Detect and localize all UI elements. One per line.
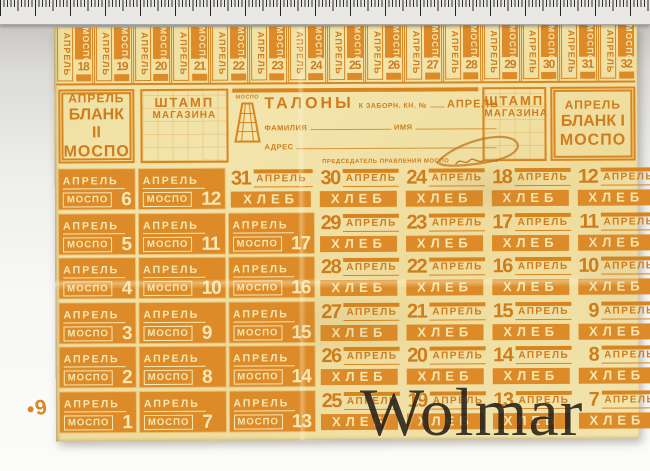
name-label: ИМЯ — [394, 123, 413, 132]
top-coupon: АПРЕЛЬ МОСПО 26 — [366, 26, 405, 82]
mospo-coupon: АПРЕЛЬ МОСПО 13 — [229, 391, 315, 431]
ration-book-label: К ЗАБОРН. КН. № — [359, 103, 427, 110]
bread-coupon-cell: 7 АПРЕЛЬ ХЛЕБ — [574, 387, 650, 432]
bread-product-label: ХЛЕБ — [406, 190, 483, 206]
bread-coupon-cell: 12 АПРЕЛЬ ХЛЕБ — [573, 164, 650, 209]
bread-product-label: ХЛЕБ — [321, 280, 398, 296]
bread-coupon-cell: 15 АПРЕЛЬ ХЛЕБ — [488, 299, 574, 344]
bread-product-label: ХЛЕБ — [492, 279, 569, 295]
month-label: АПРЕЛЬ — [600, 25, 616, 79]
address-label: АДРЕС — [265, 142, 294, 151]
bread-coupon: 22 АПРЕЛЬ ХЛЕБ — [404, 255, 486, 297]
org-label: МОСПО — [233, 236, 282, 251]
top-coupon: АПРЕЛЬ МОСПО 22 — [211, 27, 250, 83]
month-label: АПРЕЛЬ — [515, 257, 571, 275]
coupon-end-block — [425, 73, 440, 80]
org-strip: МОСПО 18 — [75, 27, 91, 85]
mospo-coupon: АПРЕЛЬ МОСПО 3 — [59, 303, 135, 343]
month-label: АПРЕЛЬ — [429, 302, 485, 320]
month-label: АПРЕЛЬ — [515, 212, 571, 230]
month-label: АПРЕЛЬ — [328, 26, 344, 80]
coupon-end-block — [386, 73, 401, 80]
bread-product-label: ХЛЕБ — [321, 325, 398, 341]
day-number: 22 — [404, 257, 426, 277]
org-label: МОСПО — [308, 26, 324, 58]
org-label: МОСПО — [153, 27, 169, 59]
org-label: МОСПО — [143, 236, 192, 251]
coupon-end-block — [502, 72, 517, 79]
month-label: АПРЕЛЬ — [143, 175, 205, 189]
mospo-coupon: АПРЕЛЬ МОСПО 5 — [59, 214, 135, 254]
org-label: МОСПО — [63, 281, 112, 296]
org-label: МОСПО — [75, 27, 91, 59]
top-coupon: АПРЕЛЬ МОСПО 21 — [172, 27, 211, 83]
month-label: АПРЕЛЬ — [429, 347, 485, 365]
month-label: АПРЕЛЬ — [173, 27, 189, 81]
month-label: АПРЕЛЬ — [601, 257, 650, 275]
mospo-coupon-cell: АПРЕЛЬ МОСПО 4 — [57, 256, 137, 301]
coupon-number: 23 — [269, 58, 285, 72]
org-strip: МОСПО 30 — [540, 25, 556, 83]
month-label: АПРЕЛЬ — [64, 354, 126, 368]
bread-coupon: 27 АПРЕЛЬ ХЛЕБ — [318, 301, 400, 343]
measurement-ruler — [0, 0, 650, 25]
stamp-label: ШТАМП — [142, 95, 226, 110]
day-number: 15 — [490, 301, 512, 321]
mospo-coupon: АПРЕЛЬ МОСПО 8 — [140, 347, 226, 387]
day-number: 29 — [318, 213, 340, 233]
org-strip: МОСПО 27 — [424, 26, 440, 84]
top-coupon: АПРЕЛЬ МОСПО 32 — [599, 24, 635, 80]
top-coupon: АПРЕЛЬ МОСПО 28 — [444, 25, 483, 81]
bread-product-label: ХЛЕБ — [407, 279, 484, 295]
coupon-end-block — [231, 74, 246, 81]
coupon-end-block — [541, 72, 556, 79]
mospo-coupon: АПРЕЛЬ МОСПО 17 — [228, 213, 314, 253]
mospo-coupon: АПРЕЛЬ МОСПО 14 — [229, 347, 315, 387]
month-label: АПРЕЛЬ — [251, 26, 267, 80]
org-strip: МОСПО 23 — [269, 26, 285, 84]
month-label: АПРЕЛЬ — [212, 27, 228, 81]
org-label: МОСПО — [269, 26, 285, 58]
bread-product-label: ХЛЕБ — [320, 235, 397, 251]
coupon-end-block — [114, 74, 129, 81]
mospo-coupon-cell: АПРЕЛЬ МОСПО 2 — [58, 345, 138, 390]
coupon-end-block — [580, 72, 595, 79]
bread-product-label: ХЛЕБ — [406, 235, 483, 251]
bread-product-label: ХЛЕБ — [492, 190, 569, 206]
top-coupon: АПРЕЛЬ МОСПО 30 — [521, 25, 560, 81]
org-label: МОСПО — [540, 25, 556, 57]
month-label: АПРЕЛЬ — [233, 308, 295, 322]
org-strip: МОСПО 29 — [502, 25, 518, 83]
day-number: 25 — [319, 391, 341, 411]
month-label: АПРЕЛЬ — [429, 257, 485, 275]
month-label: АПРЕЛЬ — [600, 167, 650, 185]
month-label: АПРЕЛЬ — [600, 212, 650, 230]
top-coupon: АПРЕЛЬ МОСПО 20 — [134, 27, 173, 83]
mospo-coupon: АПРЕЛЬ МОСПО 2 — [60, 347, 136, 387]
month-label: АПРЕЛЬ — [429, 213, 485, 231]
mospo-coupon: АПРЕЛЬ МОСПО 4 — [59, 258, 135, 298]
coupon-number: 20 — [153, 59, 169, 73]
coupon-number: 2 — [122, 370, 132, 387]
coupon-end-block — [619, 71, 634, 78]
org-label: МОСПО — [233, 325, 282, 340]
coupon-end-block — [153, 74, 168, 81]
mospo-coupon-cell: АПРЕЛЬ МОСПО 13 — [227, 389, 317, 434]
mospo-coupon: АПРЕЛЬ МОСПО 9 — [139, 302, 225, 342]
coupon-number: 22 — [230, 59, 246, 73]
month-label: АПРЕЛЬ — [343, 303, 399, 321]
sheet-header: АПРЕЛЬ БЛАНК II МОСПО ШТАМП МАГАЗИНА МОС… — [56, 84, 635, 165]
mospo-coupon: АПРЕЛЬ МОСПО 6 — [59, 169, 135, 209]
coupon-number: 29 — [502, 57, 518, 71]
org-strip: МОСПО 19 — [114, 27, 130, 85]
watermark-text: Wolmar — [360, 378, 583, 446]
bread-coupon-cell: 18 АПРЕЛЬ ХЛЕБ — [487, 165, 573, 210]
coupon-number: 21 — [191, 59, 207, 73]
coupon-number: 13 — [292, 413, 311, 430]
org-strip: МОСПО 24 — [308, 26, 324, 84]
coupon-number: 31 — [579, 57, 595, 71]
coupon-number: 4 — [122, 280, 132, 297]
top-coupon: АПРЕЛЬ МОСПО 23 — [250, 26, 289, 82]
bread-product-label: ХЛЕБ — [579, 368, 650, 384]
bread-coupon-cell: 21 АПРЕЛЬ ХЛЕБ — [402, 299, 488, 344]
day-number: 11 — [575, 211, 597, 231]
coupon-number: 30 — [541, 57, 557, 71]
month-label: АПРЕЛЬ — [63, 309, 125, 323]
month-label: АПРЕЛЬ — [561, 25, 577, 79]
bread-product-label: ХЛЕБ — [231, 191, 311, 207]
org-label: МОСПО — [385, 26, 401, 58]
org-label: МОСПО — [63, 237, 112, 252]
bread-coupon: 28 АПРЕЛЬ ХЛЕБ — [318, 256, 400, 298]
org-label: МОСПО — [114, 27, 130, 59]
bread-coupon: 8 АПРЕЛЬ ХЛЕБ — [576, 344, 650, 386]
org-label: МОСПО — [618, 24, 634, 56]
coupon-number: 24 — [308, 58, 324, 72]
coupon-end-block — [270, 73, 285, 80]
bread-product-label: ХЛЕБ — [578, 234, 650, 250]
top-coupon: АПРЕЛЬ МОСПО 24 — [289, 26, 328, 82]
bread-product-label: ХЛЕБ — [578, 323, 650, 339]
top-coupon: АПРЕЛЬ МОСПО 19 — [95, 27, 134, 83]
org-strip: МОСПО 20 — [153, 27, 169, 85]
coupon-number: 32 — [618, 56, 634, 70]
bread-coupon-cell: 31 АПРЕЛЬ ХЛЕБ — [226, 166, 316, 211]
chairman-label: ПРЕДСЕДАТЕЛЬ ПРАВЛЕНИЯ МОСПО — [322, 158, 449, 165]
org-strip: МОСПО 26 — [385, 26, 401, 84]
bread-coupon: 16 АПРЕЛЬ ХЛЕБ — [490, 255, 572, 297]
store-label: МАГАЗИНА — [142, 110, 226, 121]
coupon-number: 6 — [121, 191, 131, 208]
month-label: АПРЕЛЬ — [57, 27, 73, 81]
margin-note: •9 — [25, 395, 50, 422]
bread-product-label: ХЛЕБ — [579, 412, 650, 428]
month-label: АПРЕЛЬ — [601, 301, 650, 319]
month-label: АПРЕЛЬ — [63, 264, 125, 278]
day-number: 20 — [404, 346, 426, 366]
bread-coupon: 10 АПРЕЛЬ ХЛЕБ — [576, 255, 650, 297]
bread-coupon: 31 АПРЕЛЬ ХЛЕБ — [228, 167, 314, 209]
month-label: АПРЕЛЬ — [555, 98, 630, 112]
day-number: 16 — [490, 256, 512, 276]
coupon-number: 15 — [291, 324, 310, 341]
blank-ii-box: АПРЕЛЬ БЛАНК II МОСПО — [58, 89, 134, 163]
bread-coupon-cell: 28 АПРЕЛЬ ХЛЕБ — [316, 255, 402, 300]
day-number: 31 — [228, 169, 250, 189]
bread-product-label: ХЛЕБ — [407, 324, 484, 340]
day-number: 8 — [576, 345, 598, 365]
day-number: 9 — [576, 300, 598, 320]
mospo-coupon-cell: АПРЕЛЬ МОСПО 6 — [57, 167, 137, 212]
day-number: 30 — [318, 168, 340, 188]
mospo-coupon-cell: АПРЕЛЬ МОСПО 9 — [137, 300, 227, 345]
mospo-coupon: АПРЕЛЬ МОСПО 7 — [140, 392, 226, 432]
day-number: 28 — [318, 257, 340, 277]
org-label: МОСПО — [230, 27, 246, 59]
store-stamp-box-left: ШТАМП МАГАЗИНА — [140, 89, 228, 163]
day-number: 12 — [575, 167, 597, 187]
bread-coupon: 17 АПРЕЛЬ ХЛЕБ — [490, 210, 572, 252]
org-label: МОСПО — [144, 415, 193, 430]
bread-coupon-cell: 16 АПРЕЛЬ ХЛЕБ — [488, 254, 574, 299]
coupon-end-block — [192, 74, 207, 81]
bread-coupon-cell: 24 АПРЕЛЬ ХЛЕБ — [402, 165, 488, 210]
bread-coupon: 21 АПРЕЛЬ ХЛЕБ — [404, 300, 486, 342]
coupon-number: 28 — [463, 57, 479, 71]
mospo-logo: МОСПО — [232, 92, 262, 162]
org-label: МОСПО — [346, 26, 362, 58]
month-label: АПРЕЛЬ — [343, 169, 399, 187]
mospo-coupon-cell: АПРЕЛЬ МОСПО 3 — [57, 301, 137, 346]
scanned-ration-sheet: АПРЕЛЬ МОСПО 18 АПРЕЛЬ МОСПО 19 АПРЕЛЬ М… — [0, 0, 650, 471]
bread-coupon: 9 АПРЕЛЬ ХЛЕБ — [576, 299, 650, 341]
handwritten-scribble — [432, 127, 528, 172]
coupon-number: 1 — [122, 414, 132, 431]
mospo-coupon: АПРЕЛЬ МОСПО 16 — [229, 257, 315, 297]
mospo-coupon: АПРЕЛЬ МОСПО 15 — [229, 302, 315, 342]
mospo-coupon-cell: АПРЕЛЬ МОСПО 10 — [137, 256, 227, 301]
top-coupon: АПРЕЛЬ МОСПО 29 — [483, 25, 522, 81]
bread-coupon: 23 АПРЕЛЬ ХЛЕБ — [404, 211, 486, 253]
bread-product-label: ХЛЕБ — [578, 279, 650, 295]
bread-coupon-cell: 17 АПРЕЛЬ ХЛЕБ — [488, 209, 574, 254]
top-coupon: АПРЕЛЬ МОСПО 18 — [56, 27, 95, 83]
month-label: АПРЕЛЬ — [445, 25, 461, 79]
month-label: АПРЕЛЬ — [64, 398, 126, 412]
store-label: МАГАЗИНА — [484, 108, 544, 119]
bread-coupon: 30 АПРЕЛЬ ХЛЕБ — [318, 167, 400, 209]
mospo-coupon-cell: АПРЕЛЬ МОСПО 1 — [58, 390, 138, 435]
bread-coupon: 12 АПРЕЛЬ ХЛЕБ — [575, 165, 650, 207]
surname-label: ФАМИЛИЯ — [264, 123, 307, 132]
day-number: 26 — [319, 346, 341, 366]
bread-coupon-cell: 22 АПРЕЛЬ ХЛЕБ — [402, 254, 488, 299]
mospo-coupon: АПРЕЛЬ МОСПО 11 — [139, 213, 225, 253]
month-label: АПРЕЛЬ — [515, 346, 571, 364]
org-label: МОСПО — [64, 371, 113, 386]
bread-coupon-cell: 8 АПРЕЛЬ ХЛЕБ — [574, 343, 650, 388]
month-label: АПРЕЛЬ — [143, 219, 205, 233]
mospo-coupon-cell: АПРЕЛЬ МОСПО 14 — [227, 345, 317, 390]
month-label: АПРЕЛЬ — [233, 353, 295, 367]
bread-coupon-cell: 27 АПРЕЛЬ ХЛЕБ — [316, 299, 402, 344]
month-label: АПРЕЛЬ — [344, 347, 400, 365]
month-label: АПРЕЛЬ — [232, 219, 294, 233]
blank-number-label: БЛАНК I — [555, 113, 630, 131]
mospo-coupon: АПРЕЛЬ МОСПО 12 — [139, 169, 225, 209]
coupon-number: 19 — [114, 59, 130, 73]
bread-coupon-cell: 23 АПРЕЛЬ ХЛЕБ — [402, 210, 488, 255]
month-label: АПРЕЛЬ — [522, 25, 538, 79]
coupon-number: 25 — [347, 58, 363, 72]
org-strip: МОСПО 22 — [230, 27, 246, 85]
mospo-coupon-cell: АПРЕЛЬ МОСПО 7 — [138, 390, 228, 435]
day-number: 23 — [404, 212, 426, 232]
month-label: АПРЕЛЬ — [406, 26, 422, 80]
blank-i-box: АПРЕЛЬ БЛАНК I МОСПО — [550, 86, 635, 160]
coupon-number: 16 — [291, 279, 310, 296]
bread-product-label: ХЛЕБ — [493, 324, 570, 340]
bread-product-label: ХЛЕБ — [578, 189, 650, 205]
month-label: АПРЕЛЬ — [63, 91, 129, 105]
bread-coupon-cell: 29 АПРЕЛЬ ХЛЕБ — [316, 210, 402, 255]
blank-number-label: БЛАНК II — [63, 106, 129, 142]
month-label: АПРЕЛЬ — [343, 213, 399, 231]
bread-coupon: 7 АПРЕЛЬ ХЛЕБ — [576, 388, 650, 430]
month-label: АПРЕЛЬ — [601, 346, 650, 364]
coupon-end-block — [308, 73, 323, 80]
mospo-coupon: АПРЕЛЬ МОСПО 10 — [139, 258, 225, 298]
org-strip: МОСПО 32 — [618, 24, 634, 82]
stamp-label: ШТАМП — [484, 93, 544, 108]
org-label: МОСПО — [63, 192, 112, 207]
book-number-blank-line — [430, 97, 444, 107]
month-label: АПРЕЛЬ — [143, 264, 205, 278]
surname-blank-line — [310, 120, 391, 130]
coupon-end-block — [76, 74, 91, 81]
month-label: АПРЕЛЬ — [144, 398, 206, 412]
top-coupon-strip: АПРЕЛЬ МОСПО 18 АПРЕЛЬ МОСПО 19 АПРЕЛЬ М… — [56, 24, 635, 85]
coupon-number: 8 — [202, 369, 212, 386]
month-label: АПРЕЛЬ — [484, 25, 500, 79]
org-label: МОСПО — [424, 26, 440, 58]
org-strip: МОСПО 28 — [463, 25, 479, 83]
mospo-coupon-cell: АПРЕЛЬ МОСПО 5 — [57, 212, 137, 257]
top-coupon: АПРЕЛЬ МОСПО 25 — [327, 26, 366, 82]
mospo-coupon-cell: АПРЕЛЬ МОСПО 17 — [226, 211, 316, 256]
day-number: 27 — [318, 302, 340, 322]
month-label: АПРЕЛЬ — [233, 397, 295, 411]
top-coupon: АПРЕЛЬ МОСПО 31 — [560, 25, 599, 81]
org-label: МОСПО — [233, 281, 282, 296]
org-label: МОСПО — [233, 414, 282, 429]
day-number: 14 — [490, 346, 512, 366]
day-number: 17 — [490, 212, 512, 232]
mospo-coupon: АПРЕЛЬ МОСПО 1 — [60, 392, 136, 432]
org-label: МОСПО — [64, 143, 130, 161]
month-label: АПРЕЛЬ — [601, 390, 650, 408]
mospo-coupon-cell: АПРЕЛЬ МОСПО 15 — [227, 300, 317, 345]
mospo-coupon-cell: АПРЕЛЬ МОСПО 16 — [227, 255, 317, 300]
bread-coupon-cell: 11 АПРЕЛЬ ХЛЕБ — [573, 209, 650, 254]
org-label: МОСПО — [143, 326, 192, 341]
org-label: МОСПО — [555, 132, 630, 150]
sheaf-icon — [232, 100, 262, 144]
coupon-number: 10 — [202, 280, 221, 297]
org-strip: МОСПО 31 — [579, 25, 595, 83]
month-label: АПРЕЛЬ — [367, 26, 383, 80]
month-label: АПРЕЛЬ — [96, 27, 112, 81]
top-coupon: АПРЕЛЬ МОСПО 27 — [405, 25, 444, 81]
org-label: МОСПО — [144, 370, 193, 385]
coupon-number: 9 — [202, 324, 212, 341]
coupon-number: 7 — [202, 414, 212, 431]
month-label: АПРЕЛЬ — [290, 26, 306, 80]
org-label: МОСПО — [579, 25, 595, 57]
mospo-coupon-cell: АПРЕЛЬ МОСПО 8 — [138, 345, 228, 390]
month-label: АПРЕЛЬ — [515, 302, 571, 320]
coupon-number: 14 — [292, 369, 311, 386]
org-label: МОСПО — [143, 192, 192, 207]
day-number: 10 — [576, 256, 598, 276]
coupon-number: 11 — [201, 235, 219, 252]
org-strip: МОСПО 25 — [346, 26, 362, 84]
month-label: АПРЕЛЬ — [135, 27, 151, 81]
bread-coupon-cell: 10 АПРЕЛЬ ХЛЕБ — [574, 254, 650, 299]
bread-coupon: 11 АПРЕЛЬ ХЛЕБ — [575, 210, 650, 252]
org-strip: МОСПО 21 — [191, 27, 207, 85]
bread-coupon-cell: 9 АПРЕЛЬ ХЛЕБ — [574, 298, 650, 343]
bread-coupon: 15 АПРЕЛЬ ХЛЕБ — [490, 300, 572, 342]
coupon-number: 5 — [121, 236, 131, 253]
talony-title: ТАЛОНЫ — [264, 95, 353, 113]
org-label: МОСПО — [64, 415, 113, 430]
month-label: АПРЕЛЬ — [343, 258, 399, 276]
coupon-number: 17 — [291, 235, 310, 252]
month-label: АПРЕЛЬ — [143, 309, 205, 323]
bread-coupon: 18 АПРЕЛЬ ХЛЕБ — [489, 166, 571, 208]
month-label: АПРЕЛЬ — [233, 263, 295, 277]
coupon-end-block — [347, 73, 362, 80]
bread-coupon: 24 АПРЕЛЬ ХЛЕБ — [404, 166, 486, 208]
org-label: МОСПО — [143, 281, 192, 296]
mospo-coupon-cell: АПРЕЛЬ МОСПО 11 — [137, 211, 227, 256]
month-label: АПРЕЛЬ — [63, 175, 125, 189]
org-label: МОСПО — [191, 27, 207, 59]
coupon-number: 27 — [424, 58, 440, 72]
coupon-end-block — [464, 72, 479, 79]
org-label: МОСПО — [502, 25, 518, 57]
coupon-number: 12 — [201, 191, 220, 208]
coupon-number: 26 — [385, 58, 401, 72]
coupon-number: 3 — [122, 325, 132, 342]
bread-coupon: 29 АПРЕЛЬ ХЛЕБ — [318, 211, 400, 253]
mospo-coupon-cell: АПРЕЛЬ МОСПО 12 — [137, 167, 227, 212]
day-number: 24 — [404, 168, 426, 188]
month-label: АПРЕЛЬ — [63, 220, 125, 234]
bread-product-label: ХЛЕБ — [492, 234, 569, 250]
day-number: 21 — [404, 301, 426, 321]
org-label: МОСПО — [63, 326, 112, 341]
org-label: МОСПО — [463, 25, 479, 57]
month-label: АПРЕЛЬ — [144, 353, 206, 367]
bread-coupon-cell: 30 АПРЕЛЬ ХЛЕБ — [316, 166, 402, 211]
org-label: МОСПО — [233, 370, 282, 385]
